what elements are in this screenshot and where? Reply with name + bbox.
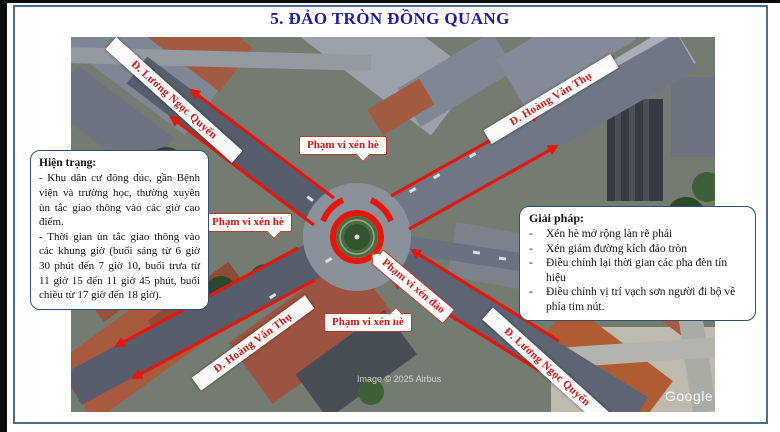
solution-item-text: Xén hè mở rộng làn rẽ phải [546, 227, 746, 241]
status-heading: Hiện trạng: [39, 156, 200, 171]
solution-item: - Xén hè mở rộng làn rẽ phải [529, 227, 746, 241]
solution-item-text: Xén giảm đường kích đảo tròn [546, 242, 746, 256]
solution-item-text: Điều chỉnh lại thời gian các pha đèn tín… [546, 256, 746, 285]
bullet-dash: - [529, 227, 546, 241]
imagery-attribution-watermark: Image © 2025 Airbus [357, 374, 441, 384]
solution-item: - Điều chỉnh vị trí vạch sơn người đi bộ… [529, 285, 746, 314]
status-paragraph-2: - Thời gian ùn tắc giao thông vào các kh… [39, 230, 200, 303]
solution-item: - Điều chỉnh lại thời gian các pha đèn t… [529, 256, 746, 285]
callout-sidewalk-trim-top: Phạm vi xén hè [299, 136, 387, 155]
bullet-dash: - [529, 242, 546, 256]
callout-sidewalk-trim-bottom: Phạm vi xén hè [324, 313, 412, 332]
bullet-dash: - [529, 285, 546, 314]
status-paragraph-1: - Khu dân cư đông đúc, gần Bệnh viện và … [39, 171, 200, 230]
solution-item: - Xén giảm đường kích đảo tròn [529, 242, 746, 256]
callout-sidewalk-trim-left: Phạm vi xén hè [204, 213, 292, 232]
slide-title: 5. ĐẢO TRÒN ĐỒNG QUANG [0, 9, 780, 29]
solution-box: Giải pháp: - Xén hè mở rộng làn rẽ phải … [519, 206, 756, 321]
solution-heading: Giải pháp: [529, 211, 746, 226]
status-box: Hiện trạng: - Khu dân cư đông đúc, gần B… [30, 150, 209, 310]
screen-top-edge [0, 0, 780, 3]
solution-item-text: Điều chỉnh vị trí vạch sơn người đi bộ v… [546, 285, 746, 314]
callout-pointer [371, 253, 382, 264]
callout-label: Phạm vi xén hè [307, 139, 379, 151]
google-watermark: Google [665, 388, 713, 404]
bullet-dash: - [529, 256, 546, 285]
screen-edge-strip [0, 0, 7, 432]
